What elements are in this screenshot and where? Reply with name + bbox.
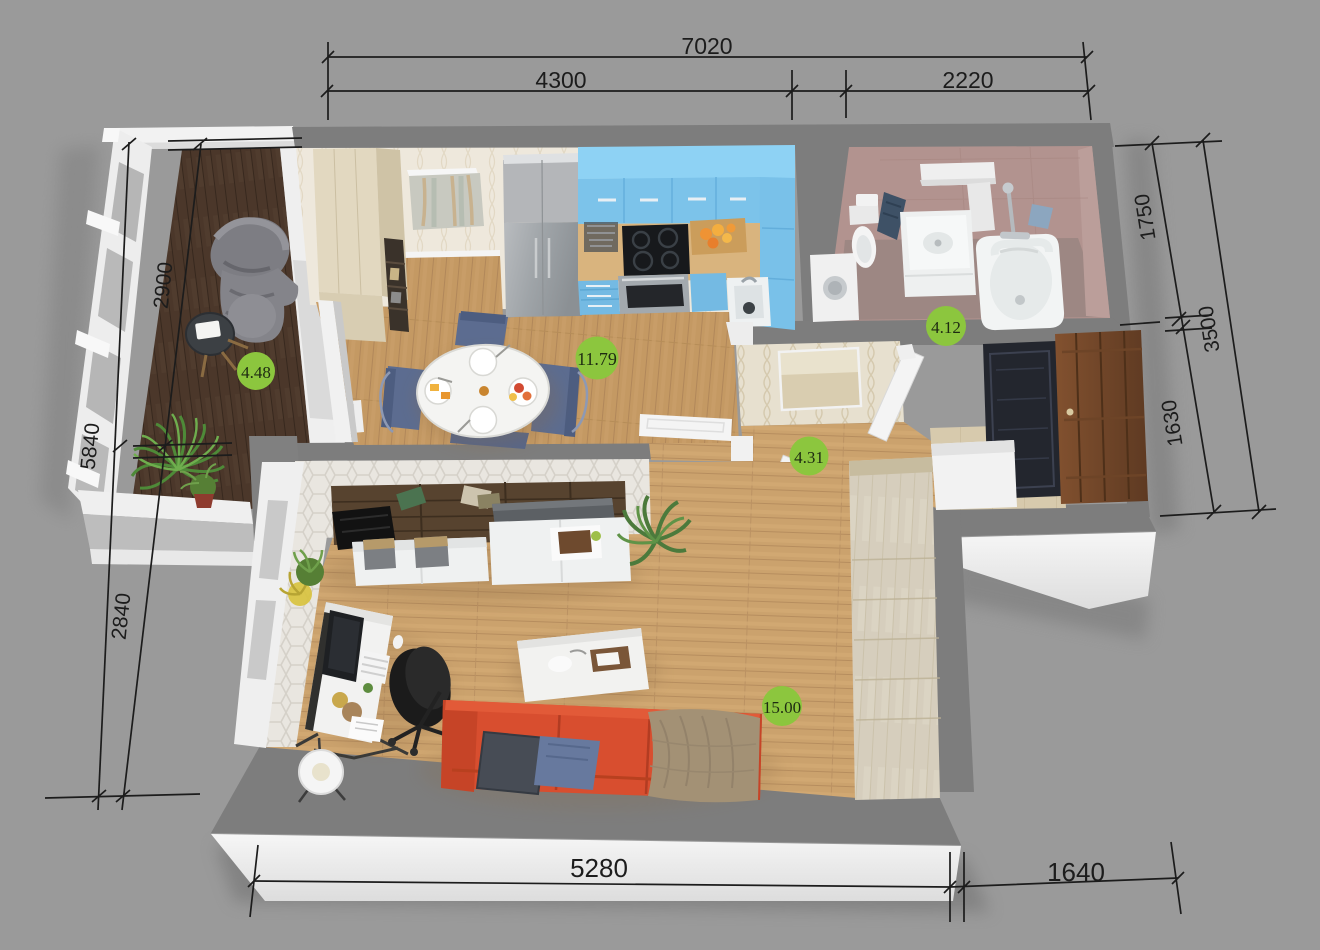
svg-text:11.79: 11.79 (577, 349, 617, 369)
svg-text:7020: 7020 (681, 33, 732, 59)
svg-text:2220: 2220 (942, 67, 993, 93)
svg-text:5280: 5280 (570, 853, 628, 883)
svg-text:4.31: 4.31 (794, 448, 824, 467)
svg-text:1640: 1640 (1047, 857, 1105, 887)
svg-text:4.48: 4.48 (241, 363, 271, 382)
svg-text:4.12: 4.12 (931, 318, 961, 337)
svg-text:5840: 5840 (77, 422, 105, 471)
svg-text:4300: 4300 (535, 67, 586, 93)
svg-text:2900: 2900 (150, 261, 178, 310)
svg-text:15.00: 15.00 (763, 698, 801, 717)
svg-text:2840: 2840 (108, 592, 136, 641)
